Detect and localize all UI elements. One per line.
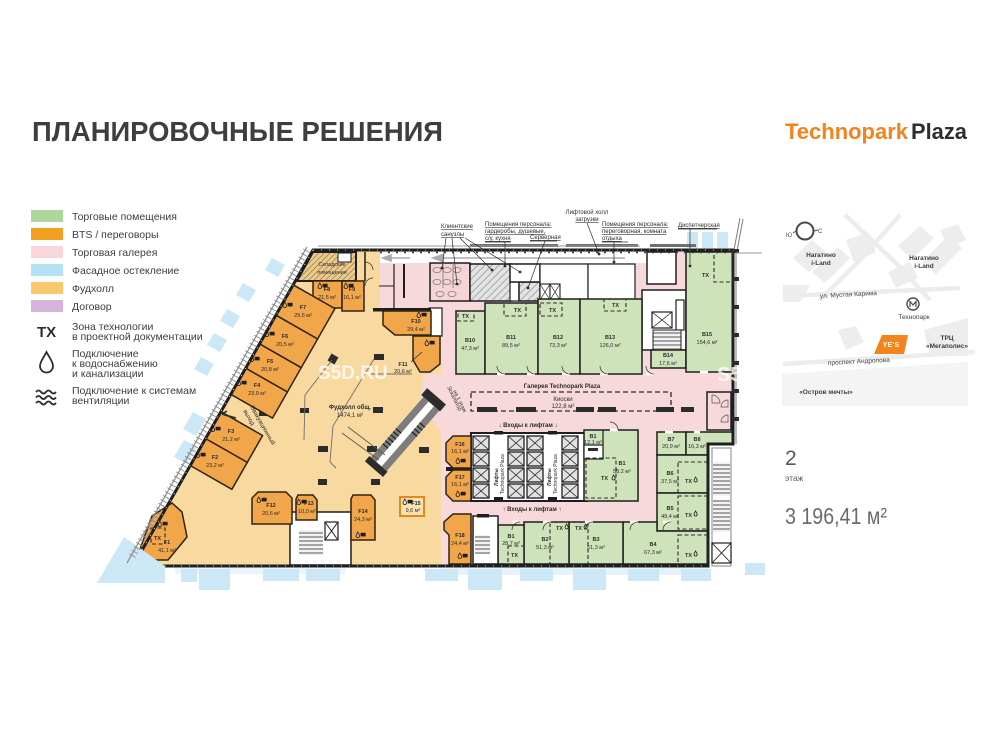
svg-text:B6: B6 bbox=[666, 471, 673, 477]
svg-text:B3: B3 bbox=[592, 537, 599, 543]
svg-text:с/у, кухня: с/у, кухня bbox=[485, 236, 511, 242]
svg-text:в проектной документации: в проектной документации bbox=[72, 331, 203, 343]
svg-text:Фасадное остекление: Фасадное остекление bbox=[72, 265, 179, 277]
svg-text:F18: F18 bbox=[455, 533, 464, 539]
svg-text:20,6 м²: 20,6 м² bbox=[394, 369, 412, 375]
svg-text:20,6 м²: 20,6 м² bbox=[262, 511, 280, 517]
svg-text:Plaza: Plaza bbox=[911, 119, 967, 144]
svg-text:37,5 м²: 37,5 м² bbox=[661, 479, 679, 485]
svg-text:20,8 м²: 20,8 м² bbox=[261, 367, 279, 373]
svg-text:BTS / переговоры: BTS / переговоры bbox=[72, 229, 159, 241]
svg-text:47,3 м²: 47,3 м² bbox=[461, 346, 479, 352]
svg-text:126,0 м²: 126,0 м² bbox=[600, 343, 621, 349]
svg-text:и канализации: и канализации bbox=[72, 368, 144, 380]
svg-text:Помещения персонала:: Помещения персонала: bbox=[485, 222, 552, 228]
svg-text:20,9 м²: 20,9 м² bbox=[662, 444, 680, 450]
svg-text:F9: F9 bbox=[349, 287, 355, 293]
svg-text:загрузки: загрузки bbox=[575, 217, 598, 223]
svg-text:20,5 м²: 20,5 м² bbox=[276, 342, 294, 348]
svg-text:F7: F7 bbox=[300, 305, 306, 311]
svg-text:67,3 м²: 67,3 м² bbox=[644, 550, 662, 556]
svg-text:28,7 м²: 28,7 м² bbox=[502, 541, 520, 547]
svg-text:41,1 м²: 41,1 м² bbox=[158, 548, 176, 554]
svg-text:B13: B13 bbox=[605, 335, 615, 341]
svg-text:23,2 м²: 23,2 м² bbox=[206, 463, 224, 469]
svg-text:B4: B4 bbox=[649, 542, 657, 548]
svg-text:89,5 м²: 89,5 м² bbox=[502, 343, 520, 349]
svg-text:Договор: Договор bbox=[72, 301, 112, 313]
svg-text:ТРЦ: ТРЦ bbox=[940, 335, 953, 342]
svg-text:21,2 м²: 21,2 м² bbox=[222, 437, 240, 443]
svg-text:F8: F8 bbox=[324, 287, 330, 293]
svg-text:«Мегаполис»: «Мегаполис» bbox=[926, 343, 968, 350]
svg-text:отдыха: отдыха bbox=[602, 236, 623, 242]
svg-text:F2: F2 bbox=[212, 455, 218, 461]
svg-text:17,6 м²: 17,6 м² bbox=[659, 361, 677, 367]
svg-text:16,1 м²: 16,1 м² bbox=[451, 449, 469, 455]
svg-text:B12: B12 bbox=[553, 335, 563, 341]
svg-text:ТХ: ТХ bbox=[685, 553, 692, 559]
svg-text:ТХ: ТХ bbox=[685, 479, 692, 485]
svg-text:B1: B1 bbox=[618, 461, 625, 467]
svg-text:24,3 м²: 24,3 м² bbox=[354, 517, 372, 523]
svg-text:ТХ: ТХ bbox=[601, 476, 608, 482]
svg-text:проспект Андропова: проспект Андропова bbox=[828, 357, 891, 367]
svg-text:i-Land: i-Land bbox=[914, 263, 934, 270]
svg-text:i-Land: i-Land bbox=[811, 260, 831, 267]
svg-text:Киоски: Киоски bbox=[553, 397, 572, 403]
svg-text:ТХ: ТХ bbox=[154, 536, 161, 542]
svg-text:F14: F14 bbox=[358, 509, 368, 515]
svg-text:B10: B10 bbox=[465, 338, 475, 344]
svg-text:Лифтовой холл: Лифтовой холл bbox=[566, 209, 609, 216]
svg-text:F5: F5 bbox=[267, 359, 273, 365]
svg-text:F17: F17 bbox=[455, 475, 464, 481]
svg-text:ТХ: ТХ bbox=[702, 273, 709, 279]
svg-text:этаж: этаж bbox=[785, 473, 804, 483]
svg-text:51,3 м²: 51,3 м² bbox=[536, 545, 554, 551]
svg-text:F12: F12 bbox=[266, 503, 275, 509]
svg-text:Серверная: Серверная bbox=[530, 235, 561, 241]
svg-text:F3: F3 bbox=[228, 429, 234, 435]
svg-text:23,9 м²: 23,9 м² bbox=[248, 391, 266, 397]
svg-text:Технопарк: Технопарк bbox=[898, 314, 929, 321]
svg-text:ТХ: ТХ bbox=[511, 553, 518, 559]
svg-text:16,3 м²: 16,3 м² bbox=[688, 444, 706, 450]
svg-text:Technopark Plaza: Technopark Plaza bbox=[553, 454, 559, 494]
svg-text:ТХ: ТХ bbox=[612, 303, 619, 309]
svg-text:12,1 м²: 12,1 м² bbox=[584, 440, 602, 446]
svg-text:Лифты: Лифты bbox=[493, 468, 500, 486]
svg-text:58,2 м²: 58,2 м² bbox=[613, 469, 631, 475]
svg-text:ТХ: ТХ bbox=[685, 513, 692, 519]
svg-text:ТХ: ТХ bbox=[575, 526, 582, 532]
svg-text:помещения: помещения bbox=[317, 270, 347, 276]
svg-text:Нагатино: Нагатино bbox=[806, 252, 836, 259]
svg-text:Галерея Technopark Plaza: Галерея Technopark Plaza bbox=[524, 384, 601, 390]
svg-text:Лифты: Лифты bbox=[546, 468, 553, 486]
svg-text:ПЛАНИРОВОЧНЫЕ РЕШЕНИЯ: ПЛАНИРОВОЧНЫЕ РЕШЕНИЯ bbox=[32, 116, 443, 147]
svg-text:F16: F16 bbox=[455, 442, 464, 448]
svg-text:16,1 м²: 16,1 м² bbox=[451, 482, 469, 488]
svg-text:2: 2 bbox=[785, 447, 797, 470]
svg-text:↓ Входы к лифтам ↓: ↓ Входы к лифтам ↓ bbox=[498, 422, 557, 429]
svg-text:Technopark Plaza: Technopark Plaza bbox=[500, 454, 506, 494]
svg-text:вентиляции: вентиляции bbox=[72, 395, 129, 407]
svg-text:29,4 м²: 29,4 м² bbox=[407, 327, 425, 333]
svg-text:С: С bbox=[818, 229, 823, 235]
svg-text:Помещения персонала:: Помещения персонала: bbox=[602, 222, 669, 228]
svg-text:B11: B11 bbox=[506, 335, 516, 341]
svg-text:73,3 м²: 73,3 м² bbox=[549, 343, 567, 349]
svg-text:154,6 м²: 154,6 м² bbox=[697, 340, 718, 346]
svg-text:Фудхолл: Фудхолл bbox=[72, 283, 114, 295]
svg-text:B2: B2 bbox=[541, 537, 548, 543]
svg-text:B15: B15 bbox=[702, 332, 712, 338]
svg-text:B14: B14 bbox=[663, 353, 674, 359]
svg-text:29,6 м²: 29,6 м² bbox=[294, 313, 312, 319]
svg-text:Technopark: Technopark bbox=[785, 119, 908, 144]
svg-text:122,8 м²: 122,8 м² bbox=[552, 404, 575, 410]
svg-text:F11: F11 bbox=[398, 362, 407, 368]
svg-text:Торговые помещения: Торговые помещения bbox=[72, 211, 177, 223]
svg-text:↑ Входы к лифтам ↑: ↑ Входы к лифтам ↑ bbox=[502, 506, 561, 513]
svg-text:B7: B7 bbox=[667, 437, 674, 443]
svg-text:S5: S5 bbox=[717, 364, 741, 386]
svg-text:F10: F10 bbox=[411, 319, 420, 325]
svg-text:Нагатино: Нагатино bbox=[909, 255, 939, 262]
svg-text:санузлы: санузлы bbox=[441, 232, 464, 238]
svg-text:ТХ: ТХ bbox=[556, 526, 563, 532]
svg-text:51,3 м²: 51,3 м² bbox=[587, 545, 605, 551]
svg-text:ТХ: ТХ bbox=[549, 308, 556, 314]
svg-text:9,6 м²: 9,6 м² bbox=[406, 508, 421, 514]
svg-text:F15: F15 bbox=[411, 501, 420, 507]
svg-text:YE'S: YE'S bbox=[883, 342, 900, 349]
svg-text:1474,1 м²: 1474,1 м² bbox=[337, 413, 363, 419]
svg-text:F6: F6 bbox=[282, 334, 288, 340]
svg-text:F4: F4 bbox=[254, 383, 261, 389]
svg-text:3 196,41 м²: 3 196,41 м² bbox=[785, 503, 887, 529]
svg-text:21,5 м²: 21,5 м² bbox=[318, 295, 336, 301]
svg-text:ТХ: ТХ bbox=[462, 314, 469, 320]
svg-text:ТХ: ТХ bbox=[37, 324, 56, 341]
svg-text:B5: B5 bbox=[666, 506, 673, 512]
svg-text:«Остров мечты»: «Остров мечты» bbox=[799, 389, 853, 396]
svg-text:ТХ: ТХ bbox=[514, 308, 521, 314]
svg-text:Ю: Ю bbox=[786, 233, 792, 239]
svg-text:B1: B1 bbox=[507, 534, 514, 540]
svg-text:S5D.RU: S5D.RU bbox=[318, 363, 388, 384]
svg-text:Диспетчерская: Диспетчерская bbox=[678, 223, 720, 229]
svg-text:B8: B8 bbox=[693, 437, 700, 443]
svg-text:10,0 м²: 10,0 м² bbox=[298, 509, 316, 515]
svg-text:16,1 м²: 16,1 м² bbox=[343, 295, 361, 301]
svg-text:Фудхолл общ.: Фудхолл общ. bbox=[329, 404, 372, 411]
svg-text:F1: F1 bbox=[164, 540, 170, 546]
svg-text:Торговая галерея: Торговая галерея bbox=[72, 247, 157, 259]
svg-text:24,4 м²: 24,4 м² bbox=[451, 541, 469, 547]
svg-text:Клиентские: Клиентские bbox=[441, 224, 474, 230]
svg-text:49,4 м²: 49,4 м² bbox=[661, 514, 679, 520]
svg-text:Складские: Складские bbox=[318, 262, 345, 268]
svg-text:переговорная, комната: переговорная, комната bbox=[602, 229, 667, 235]
